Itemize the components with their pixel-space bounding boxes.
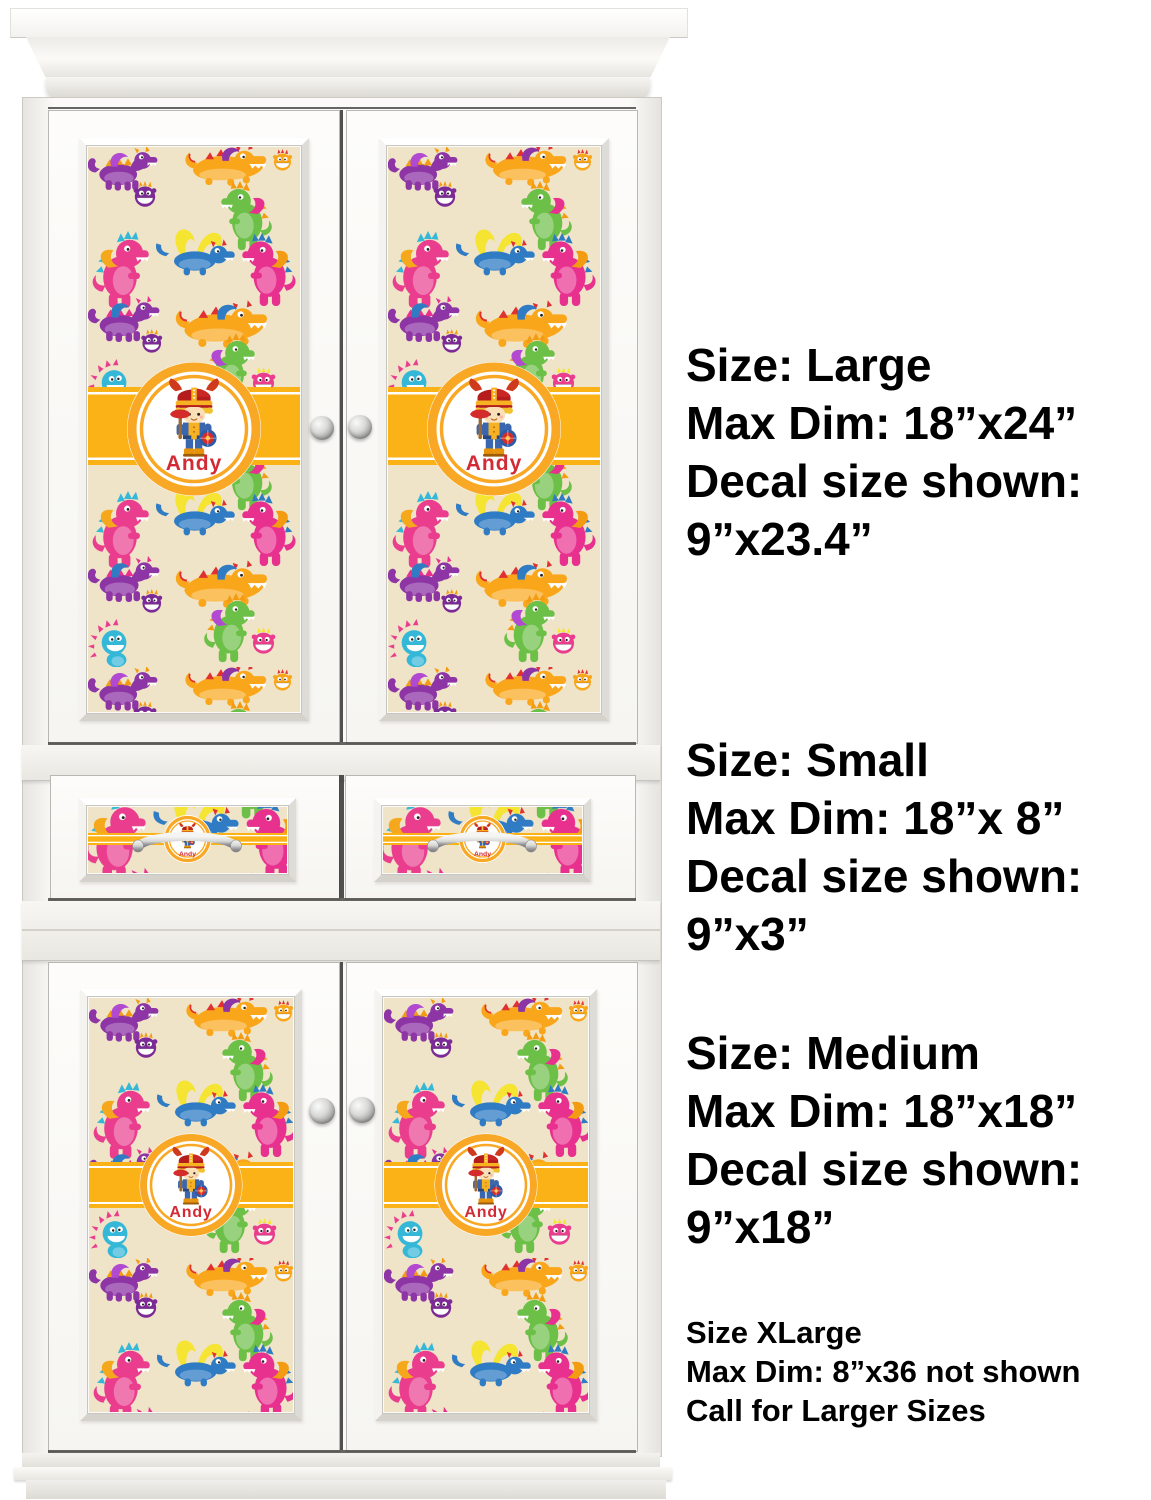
size-line: 9”x23.4”: [686, 510, 1082, 568]
size-line: Max Dim: 18”x18”: [686, 1082, 1082, 1140]
size-line: 9”x3”: [686, 905, 1082, 963]
size-label-medium: Size: Medium Max Dim: 18”x18” Decal size…: [686, 1024, 1082, 1256]
lower-waist-rail: [22, 901, 660, 961]
size-line: Decal size shown:: [686, 1140, 1082, 1198]
lower-right-door-knob: [349, 1097, 375, 1123]
crown-molding-flare: [26, 37, 670, 77]
size-line: Size: Medium: [686, 1024, 1082, 1082]
viking-badge: Andy: [127, 362, 261, 496]
decal-large-left: Andy: [88, 147, 300, 712]
viking-badge: Andy: [140, 1134, 243, 1237]
size-line: Decal size shown:: [686, 847, 1082, 905]
crown-molding-top: [10, 8, 688, 38]
base-rail: [22, 1453, 660, 1467]
size-label-large: Size: Large Max Dim: 18”x24” Decal size …: [686, 336, 1082, 568]
size-line: Size XLarge: [686, 1313, 1080, 1352]
upper-door-center-seam: [340, 110, 343, 742]
base-step-molding: [14, 1467, 672, 1480]
upper-right-door-knob: [348, 415, 372, 439]
size-line: Decal size shown:: [686, 452, 1082, 510]
upper-door-top-seam: [48, 107, 636, 109]
decal-large-right: Andy: [388, 147, 600, 712]
badge-name: Andy: [169, 1204, 212, 1221]
size-label-xlarge: Size XLarge Max Dim: 8”x36 not shown Cal…: [686, 1313, 1080, 1430]
size-line: Call for Larger Sizes: [686, 1391, 1080, 1430]
crown-molding-bead: [46, 77, 650, 98]
badge-name: Andy: [464, 1204, 507, 1221]
decal-medium-right: Andy: [384, 998, 588, 1412]
badge-name: Andy: [166, 452, 223, 475]
upper-left-door-knob: [310, 416, 334, 440]
product-mockup-canvas: Andy Andy: [0, 0, 1151, 1500]
size-label-small: Size: Small Max Dim: 18”x 8” Decal size …: [686, 731, 1082, 963]
size-line: Max Dim: 18”x24”: [686, 394, 1082, 452]
lower-left-door-knob: [309, 1098, 335, 1124]
decal-medium-left: Andy: [89, 998, 293, 1412]
drawer-handle-left: [131, 827, 243, 853]
size-line: Max Dim: 18”x 8”: [686, 789, 1082, 847]
viking-badge: Andy: [435, 1134, 538, 1237]
badge-name: Andy: [466, 452, 523, 475]
drawer-handle-right: [426, 827, 538, 853]
size-line: 9”x18”: [686, 1198, 1082, 1256]
plinth: [26, 1480, 666, 1499]
drawer-center-seam: [339, 775, 344, 898]
lower-door-center-seam: [340, 962, 343, 1450]
size-line: Max Dim: 8”x36 not shown: [686, 1352, 1080, 1391]
viking-badge: Andy: [427, 362, 561, 496]
lower-waist-rail-step: [22, 929, 660, 931]
size-line: Size: Large: [686, 336, 1082, 394]
size-line: Size: Small: [686, 731, 1082, 789]
